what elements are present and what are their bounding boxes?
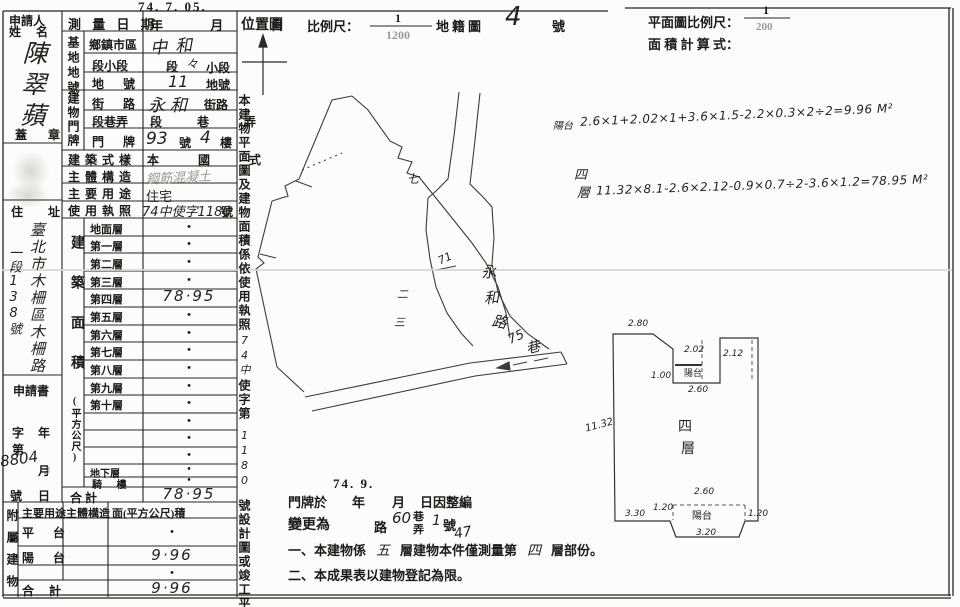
application-zi: 字 xyxy=(12,424,24,441)
door-plate-hao: 號 xyxy=(179,134,191,151)
location-scale-label: 比例尺： xyxy=(307,16,359,35)
door-plate-label: 門 牌 xyxy=(92,133,143,150)
floor-value-fourth: 78·95 xyxy=(143,287,235,305)
note-day-reorg: 日因整編 xyxy=(420,492,472,511)
formula1-label: 陽台 xyxy=(553,117,573,132)
floor-value: • xyxy=(143,449,235,461)
note-lane-handwritten: 60 xyxy=(392,509,411,527)
structure-value-handwritten: 鋼筋混凝土 xyxy=(146,165,212,187)
note1-mid: 層建物本件僅測量第 xyxy=(400,543,517,558)
note1-hand-four: 四 xyxy=(527,543,541,559)
land-section-hand: 々 xyxy=(186,55,198,72)
note-line-two: 二、本成果表以建物登記為限。 xyxy=(288,565,470,584)
note-line-one: 一、本建物係五層建物本件僅測量第四層部份。 xyxy=(288,540,603,560)
annex-row-label: 陽 台 xyxy=(22,549,73,566)
floor-label: 第十層 xyxy=(90,397,123,413)
dim-260-bottom: 2.60 xyxy=(694,487,714,497)
side-note-p2: 使字第 xyxy=(237,379,251,421)
side-note-p3: 號設計圖或竣工平面圖轉繪計算 xyxy=(237,499,251,607)
floor-value: • xyxy=(143,274,235,286)
address-label: 住 址 xyxy=(11,203,71,220)
floor-label: 第三層 xyxy=(90,274,123,290)
sketch-label-2: 二 xyxy=(397,286,408,302)
floor-value: • xyxy=(143,327,235,339)
license-suffix: 號 xyxy=(221,203,233,220)
sketch-label-3: 三 xyxy=(394,314,405,330)
door-lane-label: 段巷弄 xyxy=(92,113,128,130)
dim-280: 2.80 xyxy=(628,319,648,329)
area-group-label: 建築面積 xyxy=(66,235,86,395)
dim-120-left: 1.20 xyxy=(653,503,673,513)
scan-fold-line xyxy=(2,269,952,271)
dim-212: 2.12 xyxy=(723,349,743,359)
site-plan-sketch xyxy=(256,92,567,411)
floor-label: 第七層 xyxy=(90,344,123,360)
floor-value: • xyxy=(143,397,235,409)
floor-label: 第八層 xyxy=(90,362,123,378)
address-handwritten-col1: 臺北市木柵區木柵路 xyxy=(27,222,48,375)
land-group-label: 基地地號 xyxy=(65,36,82,96)
plan-scale-denominator: 200 xyxy=(756,21,773,33)
renumber-date-stamp: 74. 9. xyxy=(333,476,374,492)
application-label: 申請書 xyxy=(13,382,49,399)
plan-scale-numerator: 1 xyxy=(763,3,769,18)
dim-320: 3.20 xyxy=(696,528,716,538)
floor-label: 第四層 xyxy=(90,291,123,307)
annex-header-use: 主要用途 xyxy=(22,505,66,521)
floor-value: • xyxy=(143,256,235,268)
floor-value: • xyxy=(143,309,235,321)
note-road: 路 xyxy=(374,517,387,536)
annex-total-value: 9·96 xyxy=(108,579,236,597)
note-alley-char: 弄 xyxy=(413,521,424,537)
license-label: 使用執照 xyxy=(68,202,136,219)
formula2-label-char2: 層 xyxy=(577,182,590,201)
location-map-title: 位置圖 xyxy=(241,14,283,34)
door-lane-value: 段 巷 弄 xyxy=(150,113,272,130)
floor-label: 第九層 xyxy=(90,380,123,396)
arcade-label: 騎 樓 xyxy=(92,476,133,491)
floor-label: 第一層 xyxy=(90,238,123,254)
land-lot-suffix: 地號 xyxy=(206,76,230,93)
area-unit-label: (平方公尺) xyxy=(67,396,82,464)
area-total-label: 合 計 xyxy=(70,489,97,506)
basement-value: • xyxy=(143,464,235,475)
annex-row-value: • xyxy=(108,526,236,538)
plan-scale-label: 平面圖比例尺： xyxy=(648,12,739,31)
side-note-hand1: 74中 xyxy=(238,334,251,377)
note1-pre: 一、本建物係 xyxy=(288,543,366,558)
survey-date-stamp: 74. 7. 05. xyxy=(138,0,207,15)
floor-value: • xyxy=(143,344,235,356)
door-plate-no: 93 xyxy=(146,129,168,149)
application-ri: 日 xyxy=(38,487,50,504)
floor-four-char: 四 xyxy=(678,416,692,436)
floor-label: 第二層 xyxy=(90,256,123,272)
balcony-label-top: 陽台 xyxy=(684,366,702,379)
structure-label: 主體構造 xyxy=(68,168,136,185)
road-name-char2: 和 xyxy=(483,287,499,309)
formula2-label-char1: 四 xyxy=(574,164,587,183)
annex-group-label: 附屬建物 xyxy=(4,509,21,597)
usage-label: 主要用途 xyxy=(68,185,136,202)
land-lot-value: 11 xyxy=(168,72,188,91)
location-scale-numerator: 1 xyxy=(395,11,401,26)
building-survey-form: 申請人 姓 名 陳翠蘋 蓋 章 住 址 臺北市木柵區木柵路 一段138號 申請書… xyxy=(0,0,960,607)
dim-330: 3.30 xyxy=(625,509,645,519)
note1-hand-five: 五 xyxy=(376,543,390,559)
address-handwritten-col2: 一段138號 xyxy=(4,246,23,336)
road-name-char1: 永 xyxy=(480,260,498,283)
floor-label: 地面層 xyxy=(90,221,123,237)
style-label: 建築式樣 xyxy=(68,151,136,168)
note-plate-prefix: 門牌於 xyxy=(288,492,327,511)
balcony-label-bottom: 陽台 xyxy=(692,507,712,522)
side-note-p1: 本建物平面圖及建物面積係依使用執照 xyxy=(237,94,251,332)
dim-202: 2.02 xyxy=(684,345,704,355)
floor-value: • xyxy=(143,380,235,392)
applicant-name-handwritten: 陳翠蘋 xyxy=(12,39,51,133)
survey-date-label: 測 量 日 期 xyxy=(68,14,158,33)
seal-label: 蓋 章 xyxy=(15,126,69,143)
sketch-label-7: 七 xyxy=(407,170,419,187)
cadastral-sheet-suffix: 號 xyxy=(552,16,565,35)
cadastral-sheet-number: 4 xyxy=(505,2,522,32)
north-arrow xyxy=(242,35,287,95)
area-calc-label: 面 積 計 算 式： xyxy=(648,34,739,53)
door-group-label: 建物門牌 xyxy=(65,92,82,148)
annex-header-structure: 主體構造 xyxy=(66,505,110,521)
floor-label: 第六層 xyxy=(90,327,123,343)
location-scale-denominator: 1200 xyxy=(386,28,410,43)
floor-value: • xyxy=(143,362,235,374)
door-street-label: 街 路 xyxy=(92,95,143,112)
note-changed-to: 變更為 xyxy=(288,514,330,534)
note-year: 年 xyxy=(352,492,365,511)
style-value: 本 國 式 xyxy=(147,151,279,168)
dim-100: 1.00 xyxy=(651,371,671,381)
note1-post: 層部份。 xyxy=(551,543,603,558)
annex-row-label: 平 台 xyxy=(22,524,73,541)
dim-260-top: 2.60 xyxy=(688,385,708,395)
annex-row-value-balcony: 9·96 xyxy=(108,546,236,564)
door-street-suffix: 街路 xyxy=(204,96,228,113)
annex-header-area: 面(平方公尺)積 xyxy=(112,505,185,521)
floor-label: 第五層 xyxy=(90,309,123,325)
application-extra-mark: 3 xyxy=(44,466,50,477)
land-town-label: 鄉鎮市區 xyxy=(89,36,137,53)
annex-total-label: 合 計 xyxy=(22,582,67,599)
note-alley-handwritten: 1 xyxy=(432,513,441,529)
floor-value: • xyxy=(143,415,235,427)
annex-row-value: • xyxy=(108,567,236,579)
side-note-vertical: 本建物平面圖及建物面積係依使用執照74中使字第1180號設計圖或竣工平面圖轉繪計… xyxy=(236,94,253,600)
land-section-post: 小段 xyxy=(206,59,230,76)
area-total-value: 78·95 xyxy=(143,485,235,503)
door-plate-lou: 樓 xyxy=(220,134,232,151)
floor-value: • xyxy=(143,221,235,233)
dim-120-right: 1.20 xyxy=(748,509,768,519)
floor-value: • xyxy=(143,238,235,250)
floor-value: • xyxy=(143,432,235,444)
floor-level-char: 層 xyxy=(681,438,695,458)
application-nian: 年 xyxy=(38,424,50,441)
application-hao: 號 xyxy=(10,487,22,504)
land-section-label: 段小段 xyxy=(92,57,128,74)
cadastral-map-label: 地籍圖 xyxy=(436,16,484,35)
door-plate-floor: 4 xyxy=(200,128,211,148)
license-value-handwritten: 74中使字1180 xyxy=(142,201,231,220)
side-note-hand2: 1180 xyxy=(238,429,251,489)
land-lot-label: 地 號 xyxy=(92,75,143,92)
applicant-label-line2: 姓 名 xyxy=(9,23,54,40)
